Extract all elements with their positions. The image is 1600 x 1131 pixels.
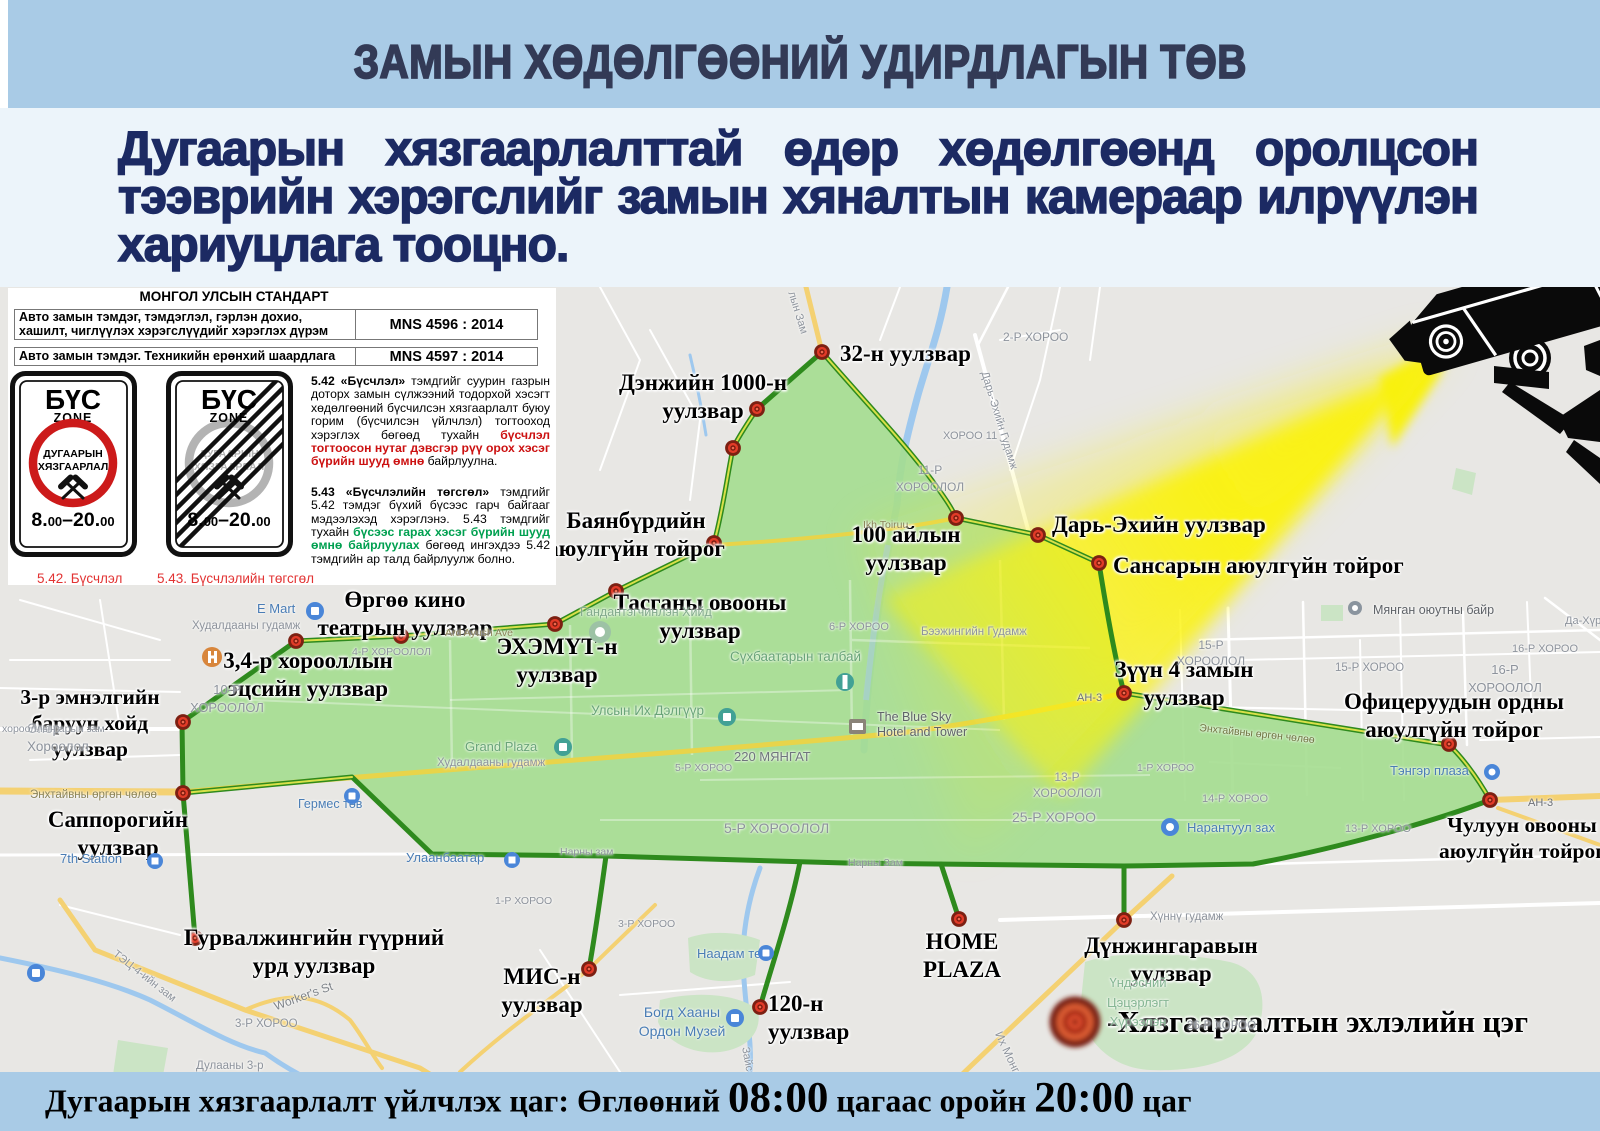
svg-text:ДУГААРЫН: ДУГААРЫН bbox=[43, 448, 102, 460]
svg-text:ХЯЗГААРЛАЛ: ХЯЗГААРЛАЛ bbox=[38, 461, 108, 473]
svg-text:ZONE: ZONE bbox=[210, 411, 249, 425]
